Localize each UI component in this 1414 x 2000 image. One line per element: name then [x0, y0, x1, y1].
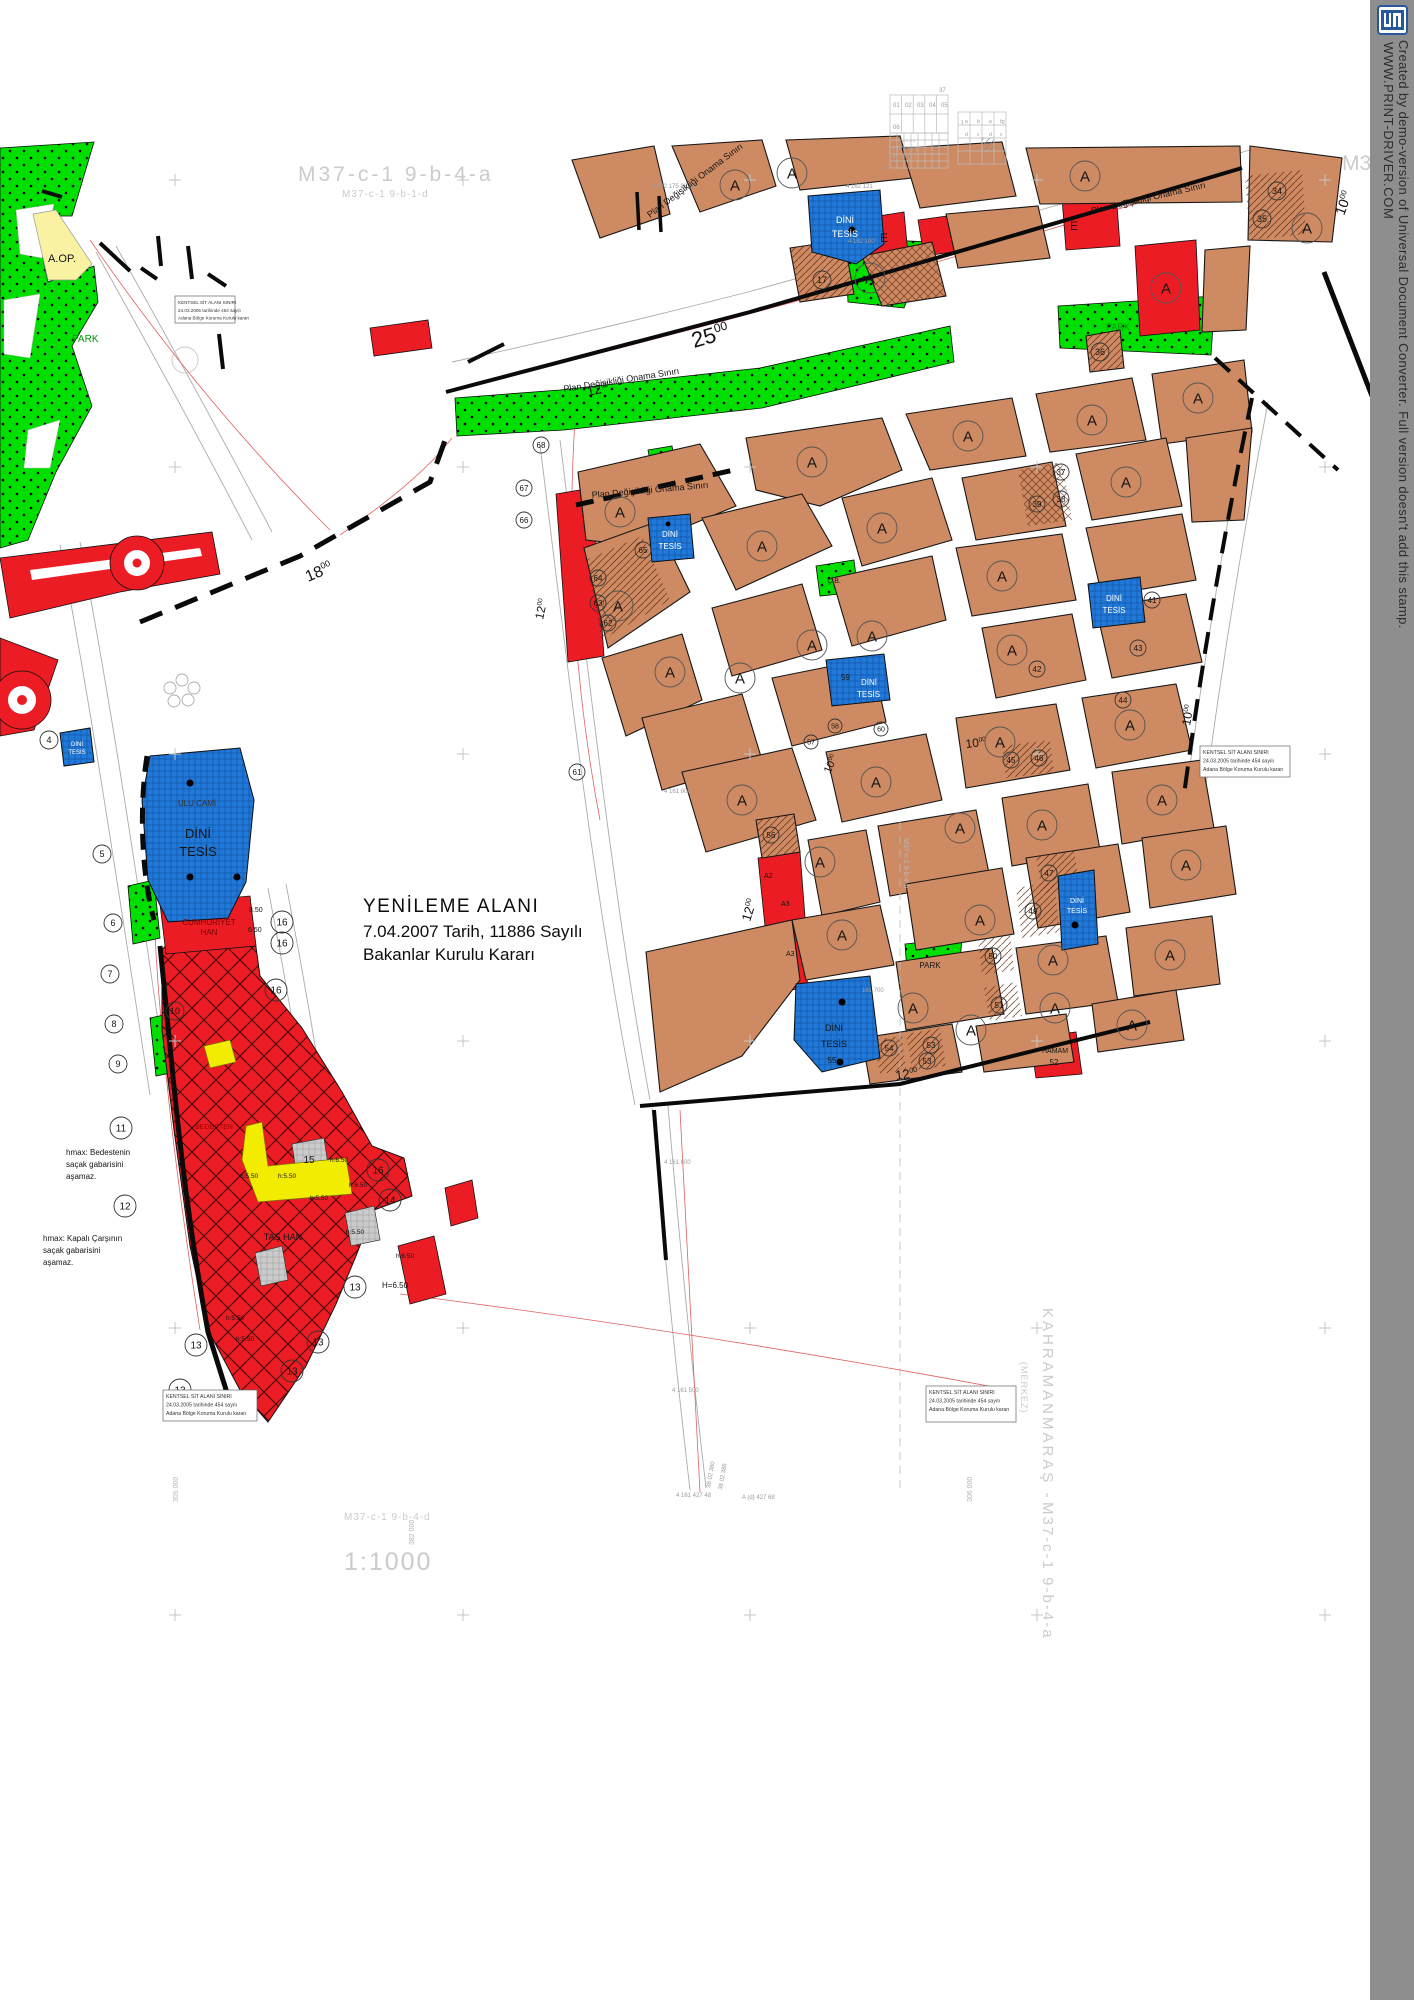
map-label: 60 — [874, 722, 888, 736]
svg-text:HAMAM: HAMAM — [1042, 1048, 1068, 1055]
map-label: aşamaz. — [43, 1258, 73, 1267]
svg-text:13: 13 — [286, 1367, 298, 1378]
svg-text:A: A — [615, 504, 625, 521]
svg-text:h:6.50: h:6.50 — [330, 1157, 348, 1164]
map-label: M37-c-1 9-b-4-a — [298, 163, 494, 186]
map-label: M — [883, 167, 888, 173]
svg-text:DİNİ: DİNİ — [71, 741, 83, 748]
svg-text:61: 61 — [573, 768, 582, 777]
svg-text:12: 12 — [119, 1202, 131, 1213]
map-label: a — [989, 119, 992, 125]
svg-text:A: A — [1007, 642, 1017, 659]
map-label: 8.50 — [249, 907, 263, 914]
svg-text:Ç.B.: Ç.B. — [827, 578, 841, 585]
svg-text:E: E — [1070, 219, 1078, 233]
svg-text:ULU CAMİ: ULU CAMİ — [178, 799, 216, 808]
grid-cross — [169, 1609, 181, 1621]
svg-text:58: 58 — [831, 724, 839, 731]
svg-text:4 162 100: 4 162 100 — [848, 239, 875, 245]
map-label: d — [989, 132, 992, 138]
svg-text:d c d c d c d: d c d c d c d — [892, 154, 917, 159]
map-label: 13 — [185, 1334, 207, 1356]
map-label: M3 — [1342, 152, 1371, 175]
svg-text:14: 14 — [384, 1196, 396, 1207]
watermark-url: WWW.PRINT-DRIVER.COM — [1381, 42, 1396, 1990]
svg-text:CUMHURİYET: CUMHURİYET — [182, 918, 235, 927]
svg-text:A: A — [735, 670, 745, 687]
map-label: 11 — [110, 1117, 132, 1139]
grid-cross — [169, 461, 181, 473]
map-label: A (d) 427 68 — [742, 1495, 775, 1501]
svg-text:A: A — [995, 734, 1005, 751]
svg-text:saçak gabarisini: saçak gabarisini — [66, 1160, 124, 1169]
svg-text:1200: 1200 — [532, 597, 550, 620]
svg-text:TESİS: TESİS — [68, 749, 85, 756]
svg-text:M37-c-1 9-b-4-a: M37-c-1 9-b-4-a — [298, 163, 494, 186]
svg-text:A: A — [1302, 220, 1312, 237]
svg-text:50: 50 — [989, 952, 998, 961]
svg-text:1: 1 — [961, 120, 964, 126]
svg-text:41: 41 — [1148, 596, 1157, 605]
svg-text:4 161 427 48: 4 161 427 48 — [676, 1493, 712, 1499]
svg-text:h:6.50: h:6.50 — [349, 1182, 367, 1189]
grid-cross — [1319, 748, 1331, 760]
svg-text:DİNİ: DİNİ — [825, 1023, 843, 1033]
svg-text:1200: 1200 — [739, 897, 760, 923]
svg-text:M3: M3 — [1342, 152, 1371, 175]
svg-text:KAHRAMANMARAŞ -: KAHRAMANMARAŞ - — [1039, 1308, 1056, 1501]
map-label: M37-c-1 9-b-4-a — [1039, 1502, 1056, 1640]
svg-text:h:6.50: h:6.50 — [396, 1253, 414, 1260]
svg-text:A: A — [1125, 717, 1135, 734]
svg-text:HAN: HAN — [201, 928, 218, 937]
svg-text:A: A — [1050, 1000, 1060, 1017]
svg-text:382 000: 382 000 — [409, 1520, 416, 1545]
svg-text:d: d — [965, 158, 968, 164]
svg-text:53: 53 — [927, 1041, 936, 1050]
plan-sheet: M37-c-1 9-b-4-aM37-c-1 9-b-1-dM3M37-c-1 … — [0, 0, 1414, 2000]
map-label: h:5.50 — [346, 1229, 364, 1236]
svg-text:A: A — [815, 854, 825, 871]
svg-text:64: 64 — [594, 574, 603, 583]
svg-text:54: 54 — [885, 1044, 894, 1053]
svg-text:A: A — [997, 568, 1007, 585]
map-label: TESİS — [1067, 906, 1088, 915]
svg-text:38: 38 — [1057, 495, 1066, 504]
map-label: HAMAM — [1042, 1048, 1068, 1055]
svg-text:45: 45 — [1007, 756, 1016, 765]
svg-text:51: 51 — [995, 1001, 1004, 1010]
map-label: CUMHURİYET — [182, 918, 235, 927]
svg-text:59: 59 — [841, 673, 850, 682]
map-label: TAŞ HAN — [264, 1232, 302, 1242]
svg-text:16: 16 — [276, 918, 288, 929]
svg-text:Adana Bölge Koruma Kurulu kara: Adana Bölge Koruma Kurulu kararı — [929, 1407, 1009, 1413]
svg-text:A: A — [1087, 412, 1097, 429]
map-label: ULU CAMİ — [178, 799, 216, 808]
map-label: b — [977, 145, 980, 151]
map-label: 4 — [40, 731, 58, 749]
svg-text:11: 11 — [116, 1124, 127, 1135]
map-label: a — [989, 145, 992, 151]
svg-text:M37-c-1 9-b-1-d: M37-c-1 9-b-1-d — [342, 189, 429, 200]
svg-text:b: b — [977, 145, 980, 151]
map-label: saçak gabarisini — [43, 1246, 101, 1255]
map-label: 382 000 — [409, 1520, 416, 1545]
svg-text:Adana Bölge Koruma Kurulu kara: Adana Bölge Koruma Kurulu kararı — [178, 316, 249, 321]
svg-text:M37-c-1 9-b-4-b: M37-c-1 9-b-4-b — [902, 838, 909, 888]
map-label: h:5.50 — [278, 1173, 296, 1180]
grid-cross — [1319, 1035, 1331, 1047]
svg-text:A.OP.: A.OP. — [48, 253, 76, 265]
svg-text:A: A — [1165, 947, 1175, 964]
svg-text:6: 6 — [110, 918, 115, 928]
svg-text:17: 17 — [817, 275, 827, 285]
svg-text:A: A — [613, 598, 623, 615]
svg-text:13: 13 — [190, 1341, 202, 1352]
svg-text:Adana Bölge Koruma Kurulu kara: Adana Bölge Koruma Kurulu kararı — [1203, 767, 1283, 773]
map-label: 8 — [105, 1015, 123, 1033]
map-label: hmax: Bedestenin — [66, 1148, 130, 1157]
map-label: 1:1000 — [344, 1548, 432, 1576]
map-label: 13 — [344, 1276, 366, 1298]
map-label: 67 — [516, 480, 532, 496]
svg-text:M37-c-1 9-b-4-a: M37-c-1 9-b-4-a — [1039, 1502, 1056, 1640]
map-label: 161 700 — [862, 988, 884, 994]
map-label: h:6.50 — [396, 1253, 414, 1260]
svg-text:1800: 1800 — [302, 558, 335, 586]
svg-text:16: 16 — [372, 1166, 384, 1177]
svg-text:PARK: PARK — [72, 334, 99, 345]
svg-text:A: A — [908, 1000, 918, 1017]
map-label: h:6.50 — [349, 1182, 367, 1189]
svg-text:a: a — [965, 119, 968, 125]
map-label: DİNİ — [825, 1023, 843, 1033]
site-note-box: KENTSEL SİT ALANI SINIRI24.03.2005 tarih… — [1200, 746, 1290, 777]
svg-text:24.03.2005 tarihinde 454 sayıl: 24.03.2005 tarihinde 454 sayılı — [166, 1402, 237, 1408]
svg-text:TESİS: TESİS — [1102, 606, 1125, 615]
map-label: 03 — [917, 103, 924, 109]
svg-text:3: 3 — [961, 152, 964, 158]
svg-text:A: A — [1161, 280, 1171, 297]
map-label: TESİS — [832, 229, 858, 239]
svg-text:A: A — [1157, 792, 1167, 809]
svg-text:306 000: 306 000 — [967, 1477, 974, 1502]
map-label: E — [1070, 219, 1078, 233]
grid-cross — [1319, 461, 1331, 473]
svg-text:Adana Bölge Koruma Kurulu kara: Adana Bölge Koruma Kurulu kararı — [166, 1411, 246, 1417]
svg-text:DİNİ: DİNİ — [836, 215, 854, 225]
map-label: 1800 — [302, 558, 335, 586]
svg-text:(MERKEZ): (MERKEZ) — [1019, 1362, 1029, 1414]
map-label: HAN — [201, 928, 218, 937]
watermark-text: Created by demo-version of Universal Doc… — [1396, 40, 1411, 1990]
map-label: 1200 — [532, 597, 550, 620]
svg-text:56: 56 — [767, 831, 776, 840]
svg-text:DİNİ: DİNİ — [1106, 594, 1122, 603]
svg-text:saçak gabarisini: saçak gabarisini — [43, 1246, 101, 1255]
grid-cross — [457, 1035, 469, 1047]
svg-text:h:5.50: h:5.50 — [346, 1229, 364, 1236]
map-label: d — [989, 158, 992, 164]
renewal-title-line3: Bakanlar Kurulu Kararı — [363, 945, 583, 965]
map-label: 38 02 386 — [718, 1462, 729, 1490]
svg-text:34: 34 — [1272, 186, 1282, 196]
watermark-stripe: Created by demo-version of Universal Doc… — [1370, 0, 1414, 2000]
svg-text:TESİS: TESİS — [857, 690, 880, 699]
map-label: A3 — [781, 901, 790, 908]
svg-text:16: 16 — [270, 986, 282, 997]
map-label: DİNİ — [861, 678, 877, 687]
map-label: 4 161 427 48 — [676, 1493, 712, 1499]
svg-text:13: 13 — [349, 1283, 361, 1294]
svg-text:5: 5 — [99, 849, 104, 859]
svg-text:46: 46 — [1035, 754, 1044, 763]
svg-text:38 02 380: 38 02 380 — [706, 1460, 717, 1488]
map-label: M37-c-1 9-b-4-d — [344, 1512, 431, 1523]
svg-text:4 161 900: 4 161 900 — [664, 789, 691, 795]
svg-text:4 161 600: 4 161 600 — [664, 1160, 691, 1166]
svg-text:13: 13 — [312, 1338, 324, 1349]
map-label: b — [977, 119, 980, 125]
svg-text:A: A — [807, 454, 817, 471]
svg-text:65: 65 — [639, 546, 648, 555]
map-label: 5 — [93, 845, 111, 863]
svg-text:02: 02 — [905, 103, 912, 109]
svg-text:PARK: PARK — [919, 961, 941, 970]
svg-text:57: 57 — [807, 740, 815, 747]
map-label: M37-c-1 9-b-4-b — [902, 838, 909, 888]
map-label: 06 — [893, 125, 900, 131]
svg-text:04: 04 — [929, 103, 936, 109]
svg-text:A: A — [1121, 474, 1131, 491]
svg-text:A3: A3 — [786, 951, 795, 958]
map-label: TESİS — [68, 749, 85, 756]
svg-text:4: 4 — [46, 735, 51, 745]
svg-text:16: 16 — [276, 939, 288, 950]
map-label: TESİS — [857, 690, 880, 699]
map-label: (MERKEZ) — [1019, 1362, 1029, 1414]
map-label: 6 — [104, 914, 122, 932]
map-label: b — [1000, 119, 1003, 125]
svg-text:24.03.2005 tarihinde 454 sayıl: 24.03.2005 tarihinde 454 sayılı — [178, 308, 241, 313]
map-label: H=6.50 — [382, 1281, 409, 1290]
svg-text:DİNİ: DİNİ — [861, 678, 877, 687]
map-label: DİNİ — [1106, 594, 1122, 603]
map-label: 9 — [109, 1055, 127, 1073]
svg-text:47: 47 — [1045, 869, 1054, 878]
svg-text:TESİS: TESİS — [1067, 906, 1088, 915]
svg-text:A: A — [737, 792, 747, 809]
svg-text:A: A — [1048, 952, 1058, 969]
svg-text:c c c c c c c: c c c c c c c — [892, 138, 916, 143]
svg-text:A: A — [867, 628, 877, 645]
svg-text:A: A — [787, 165, 797, 182]
svg-text:aşamaz.: aşamaz. — [66, 1172, 96, 1181]
map-label: 4 161 600 — [664, 1160, 691, 1166]
map-label: DİNİ — [71, 741, 83, 748]
svg-text:A: A — [871, 774, 881, 791]
renewal-title-line2: 7.04.2007 Tarih, 11886 Sayılı — [363, 922, 583, 942]
map-label: 04 — [929, 103, 936, 109]
map-label: 15 — [303, 1155, 315, 1166]
map-label: aşamaz. — [66, 1172, 96, 1181]
svg-text:43: 43 — [1134, 644, 1143, 653]
map-label: h:5.50 — [236, 1336, 254, 1343]
svg-text:A: A — [966, 1022, 976, 1039]
svg-text:b: b — [977, 119, 980, 125]
svg-text:d: d — [965, 132, 968, 138]
map-label: 305 000 — [173, 1477, 180, 1502]
map-label: saçak gabarisini — [66, 1160, 124, 1169]
svg-text:A2: A2 — [764, 873, 773, 880]
svg-text:42: 42 — [1033, 665, 1042, 674]
svg-text:DİNİ: DİNİ — [662, 530, 678, 539]
renewal-title-line1: YENİLEME ALANI — [363, 896, 583, 918]
svg-text:37: 37 — [939, 88, 946, 94]
svg-text:10: 10 — [170, 1006, 180, 1016]
svg-text:66: 66 — [520, 516, 529, 525]
svg-text:55: 55 — [828, 1056, 837, 1065]
svg-text:TESİS: TESİS — [832, 229, 858, 239]
map-label: 01 — [893, 103, 900, 109]
map-label: Ç.B. — [827, 578, 841, 585]
svg-text:8: 8 — [111, 1019, 116, 1029]
site-note-box: KENTSEL SİT ALANI SINIRI24.03.2005 tarih… — [175, 296, 249, 323]
svg-text:h:5.50: h:5.50 — [278, 1173, 296, 1180]
map-label: TESİS — [658, 542, 681, 551]
map-label: d — [965, 132, 968, 138]
svg-text:39: 39 — [1033, 500, 1042, 509]
map-label: 4 161 500 — [672, 1388, 699, 1394]
map-label: 1200 — [739, 897, 760, 923]
grid-cross — [169, 174, 181, 186]
grid-cross — [744, 1609, 756, 1621]
map-label: E — [880, 231, 888, 245]
udc-logo-icon — [1377, 5, 1408, 35]
map-label: hmax: Kapalı Çarşının — [43, 1234, 122, 1243]
grid-cross — [457, 461, 469, 473]
svg-text:A: A — [665, 664, 675, 681]
svg-text:a: a — [989, 145, 992, 151]
svg-text:M37-c-1 9-b-4-d: M37-c-1 9-b-4-d — [344, 1512, 431, 1523]
map-label: 52 — [1050, 1058, 1059, 1067]
map-label: 4 161 900 — [664, 789, 691, 795]
svg-text:c: c — [1000, 132, 1003, 138]
svg-text:36: 36 — [1095, 347, 1105, 357]
svg-text:A: A — [1193, 390, 1203, 407]
map-label: c c c c c c c — [892, 138, 916, 143]
svg-text:A: A — [963, 428, 973, 445]
svg-text:A: A — [975, 912, 985, 929]
site-note-box: KENTSEL SİT ALANI SINIRI24.03.2005 tarih… — [926, 1386, 1016, 1422]
grid-cross — [1319, 1322, 1331, 1334]
svg-text:a: a — [965, 145, 968, 151]
svg-text:TESİS: TESİS — [658, 542, 681, 551]
map-label: 59 — [841, 673, 850, 682]
svg-text:PARK: PARK — [1106, 322, 1130, 332]
map-label: A3 — [786, 951, 795, 958]
map-label: d — [965, 158, 968, 164]
map-label: 6.50 — [248, 927, 262, 934]
svg-text:01: 01 — [893, 103, 900, 109]
svg-text:6.50: 6.50 — [248, 927, 262, 934]
svg-text:03: 03 — [917, 103, 924, 109]
svg-text:b: b — [1000, 119, 1003, 125]
svg-text:67: 67 — [520, 484, 529, 493]
svg-text:aşamaz.: aşamaz. — [43, 1258, 73, 1267]
svg-text:A: A — [1181, 857, 1191, 874]
svg-text:A3: A3 — [781, 901, 790, 908]
svg-text:A: A — [807, 637, 817, 654]
grid-cross — [1319, 1609, 1331, 1621]
svg-text:H=6.50: H=6.50 — [382, 1281, 409, 1290]
map-label: A.OP. — [48, 253, 76, 265]
svg-text:8.50: 8.50 — [249, 907, 263, 914]
map-label: 66 — [516, 512, 532, 528]
svg-text:06: 06 — [893, 125, 900, 131]
svg-text:h:5.50: h:5.50 — [226, 1315, 244, 1322]
svg-text:b: b — [1000, 145, 1003, 151]
svg-text:15: 15 — [303, 1155, 315, 1166]
svg-text:7: 7 — [107, 969, 112, 979]
svg-text:KENTSEL SİT ALANI SINIRI: KENTSEL SİT ALANI SINIRI — [178, 299, 236, 305]
map-label: b — [1000, 145, 1003, 151]
svg-text:E: E — [880, 231, 888, 245]
svg-text:161 700: 161 700 — [862, 988, 884, 994]
map-label: TESİS — [179, 844, 217, 859]
svg-text:DİNİ: DİNİ — [185, 826, 211, 841]
svg-text:4 161 500: 4 161 500 — [672, 1388, 699, 1394]
svg-text:52: 52 — [1050, 1058, 1059, 1067]
map-label: 16 — [271, 932, 293, 954]
svg-text:KENTSEL SİT ALANI SINIRI: KENTSEL SİT ALANI SINIRI — [1203, 749, 1269, 756]
map-label: 306 000 — [967, 1477, 974, 1502]
map-label: 12 — [114, 1195, 136, 1217]
renewal-area-title: YENİLEME ALANI 7.04.2007 Tarih, 11886 Sa… — [363, 896, 583, 965]
svg-text:38 02 386: 38 02 386 — [718, 1462, 729, 1490]
grid-cross — [457, 1322, 469, 1334]
map-label: 4 162 100 — [848, 239, 875, 245]
svg-text:KENTSEL SİT ALANI SINIRI: KENTSEL SİT ALANI SINIRI — [166, 1393, 232, 1400]
svg-text:63: 63 — [594, 599, 603, 608]
svg-text:d: d — [989, 132, 992, 138]
map-label: PARK — [72, 334, 99, 345]
map-label: A2 — [764, 873, 773, 880]
map-label: h:6.50 — [330, 1157, 348, 1164]
svg-text:h:5.50: h:5.50 — [236, 1336, 254, 1343]
map-label: PARK — [919, 961, 941, 970]
svg-text:A: A — [757, 538, 767, 555]
map-label: h:5.50 — [240, 1173, 258, 1180]
svg-text:A: A — [1080, 168, 1090, 185]
svg-text:A: A — [1037, 817, 1047, 834]
map-label: TESİS — [821, 1039, 847, 1049]
svg-text:hmax: Bedestenin: hmax: Bedestenin — [66, 1148, 130, 1157]
svg-text:68: 68 — [537, 441, 546, 450]
svg-text:1:1000: 1:1000 — [344, 1548, 432, 1576]
svg-text:h:5.50: h:5.50 — [310, 1195, 328, 1202]
svg-text:49: 49 — [1029, 907, 1038, 916]
svg-text:A: A — [1127, 1017, 1137, 1034]
svg-text:44: 44 — [1119, 696, 1128, 705]
svg-text:a: a — [989, 119, 992, 125]
svg-text:24.03.2005 tarihinde 454 sayıl: 24.03.2005 tarihinde 454 sayılı — [1203, 758, 1274, 764]
map-label: DİNİ — [662, 530, 678, 539]
map-label: 38 02 380 — [706, 1460, 717, 1488]
map-label: DİNİ — [185, 826, 211, 841]
svg-text:hmax: Kapalı Çarşının: hmax: Kapalı Çarşının — [43, 1234, 122, 1243]
